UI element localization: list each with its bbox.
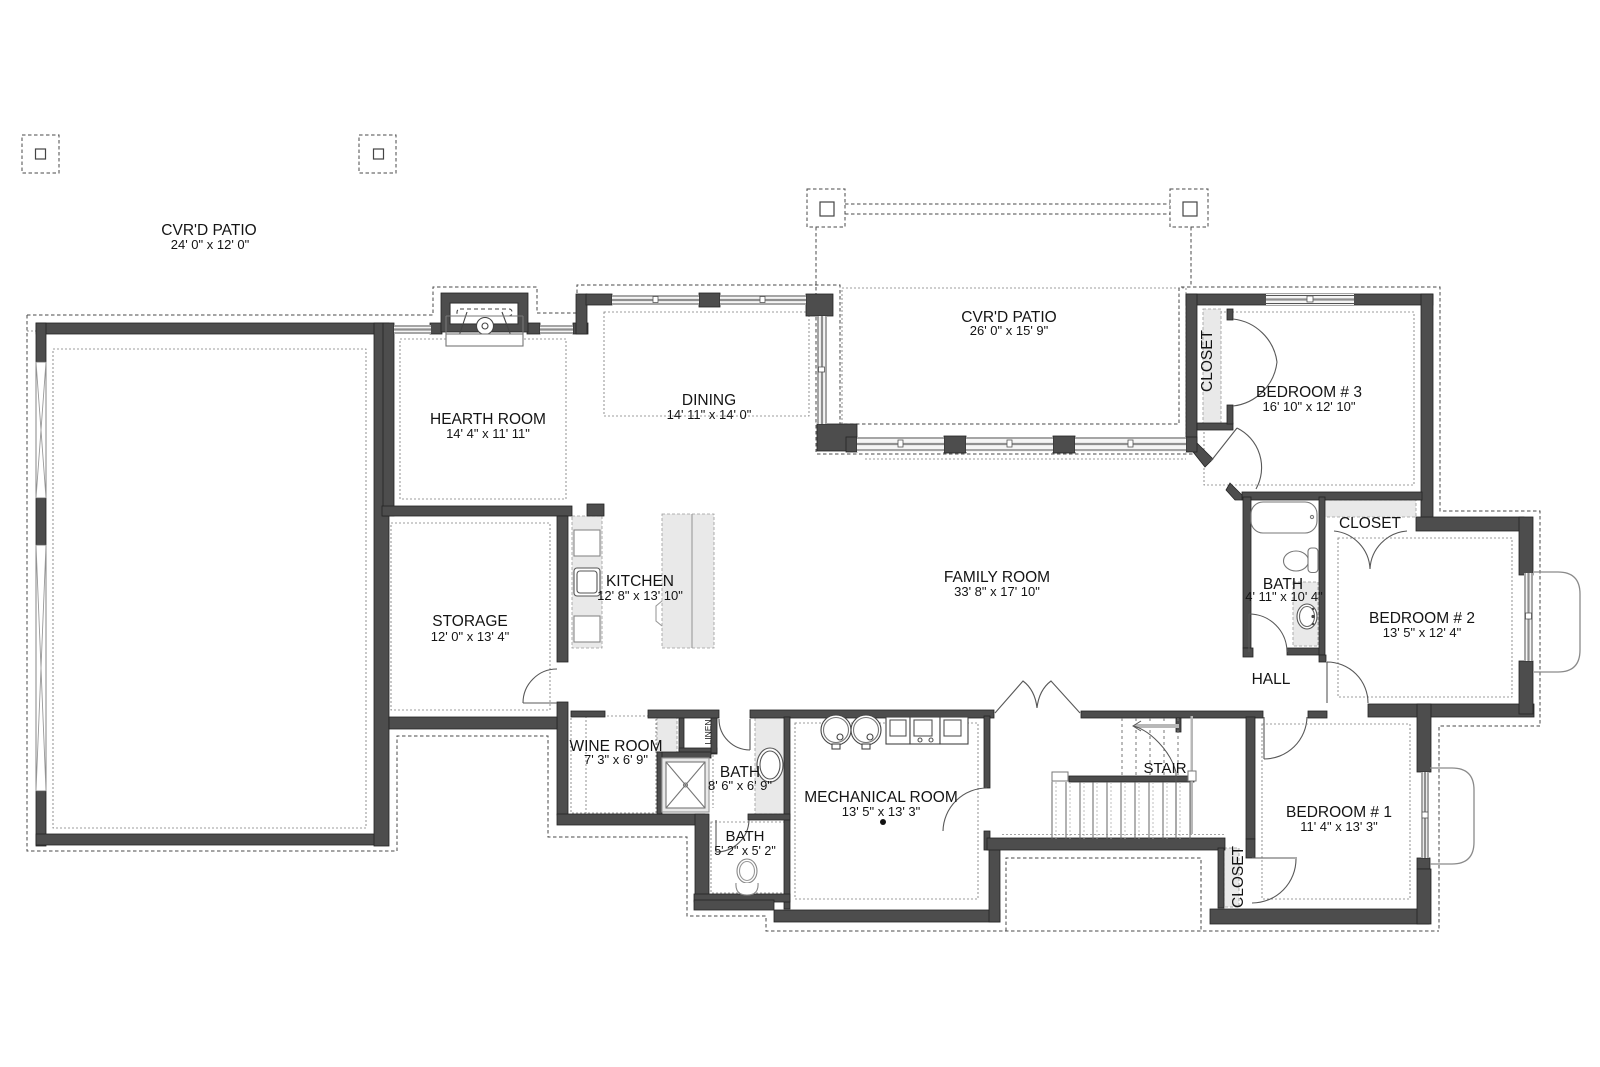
svg-text:BATH: BATH	[726, 828, 765, 845]
svg-text:CLOSET: CLOSET	[1339, 515, 1402, 532]
svg-text:11' 4" x 13' 3": 11' 4" x 13' 3"	[1300, 819, 1378, 834]
svg-text:HALL: HALL	[1252, 671, 1291, 688]
svg-text:LINEN: LINEN	[703, 719, 713, 744]
svg-text:4' 11" x 10' 4": 4' 11" x 10' 4"	[1245, 589, 1323, 604]
svg-text:CLOSET: CLOSET	[1230, 845, 1247, 908]
svg-text:8' 6" x 6' 9": 8' 6" x 6' 9"	[708, 778, 772, 793]
svg-text:CLOSET: CLOSET	[1199, 329, 1216, 392]
svg-text:7' 3" x 6' 9": 7' 3" x 6' 9"	[584, 752, 648, 767]
svg-text:24' 0" x 12' 0": 24' 0" x 12' 0"	[171, 237, 250, 252]
svg-text:STORAGE: STORAGE	[432, 613, 508, 630]
svg-text:13' 5" x 12' 4": 13' 5" x 12' 4"	[1383, 625, 1462, 640]
svg-text:33' 8" x 17' 10": 33' 8" x 17' 10"	[954, 584, 1040, 599]
svg-text:13' 5" x 13' 3": 13' 5" x 13' 3"	[842, 804, 921, 819]
svg-text:5' 2" x 5' 2": 5' 2" x 5' 2"	[714, 844, 776, 858]
svg-text:14' 11" x 14' 0": 14' 11" x 14' 0"	[667, 407, 752, 422]
svg-text:12' 8" x 13' 10": 12' 8" x 13' 10"	[597, 588, 683, 603]
svg-text:STAIR: STAIR	[1143, 760, 1186, 777]
svg-text:12' 0" x 13' 4": 12' 0" x 13' 4"	[431, 629, 510, 644]
svg-text:14' 4" x 11' 11": 14' 4" x 11' 11"	[446, 426, 530, 441]
svg-text:26' 0" x 15' 9": 26' 0" x 15' 9"	[970, 323, 1049, 338]
svg-text:16' 10" x 12' 10": 16' 10" x 12' 10"	[1263, 399, 1356, 414]
